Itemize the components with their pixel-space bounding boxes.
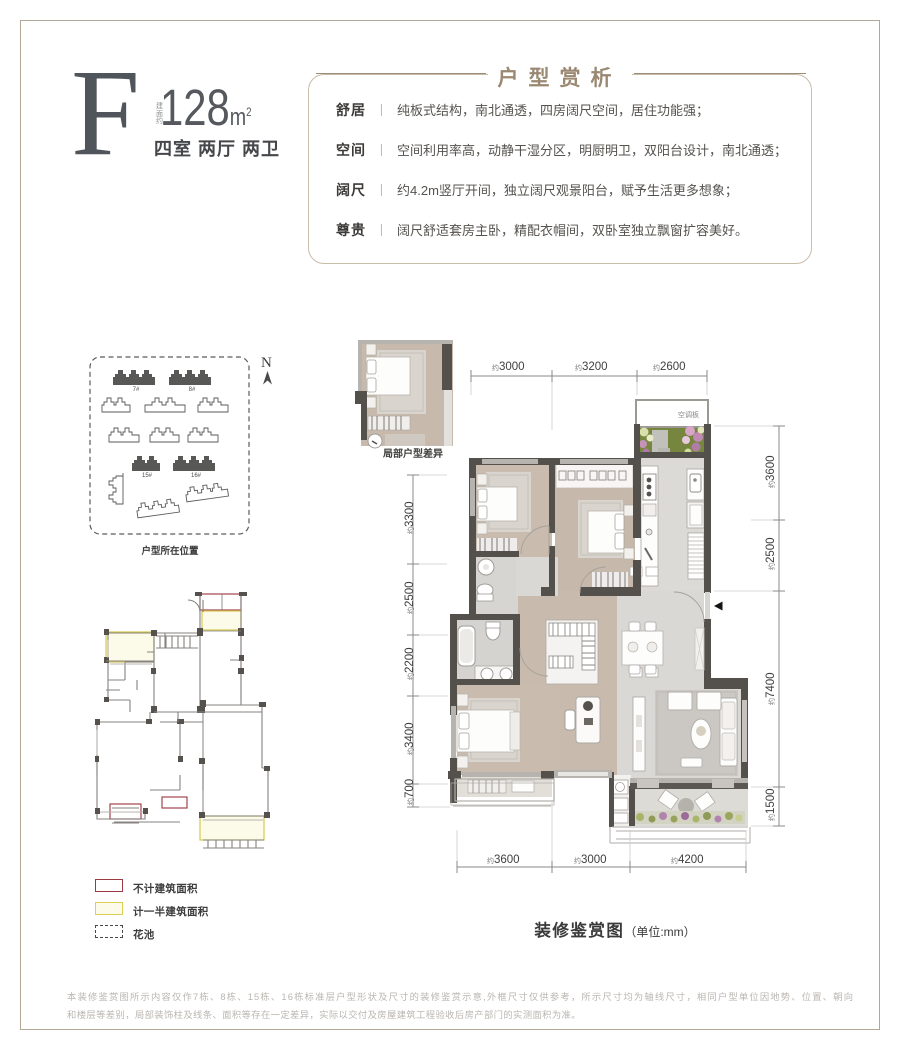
svg-text:16#: 16# xyxy=(191,473,202,479)
svg-text:约3000: 约3000 xyxy=(492,361,525,373)
svg-text:约4200: 约4200 xyxy=(671,854,704,866)
svg-text:约700: 约700 xyxy=(404,779,416,805)
svg-text:约2200: 约2200 xyxy=(404,647,416,680)
svg-text:约7400: 约7400 xyxy=(765,672,777,705)
svg-text:7#: 7# xyxy=(133,387,140,393)
svg-text:约1500: 约1500 xyxy=(765,788,777,821)
svg-text:约2600: 约2600 xyxy=(653,361,686,373)
svg-text:约3000: 约3000 xyxy=(574,854,607,866)
svg-text:空调板: 空调板 xyxy=(678,410,699,419)
svg-text:N: N xyxy=(261,355,272,371)
svg-text:约3200: 约3200 xyxy=(575,361,608,373)
svg-text:约3600: 约3600 xyxy=(765,455,777,488)
svg-text:局部户型差异: 局部户型差异 xyxy=(382,447,443,460)
svg-text:约3400: 约3400 xyxy=(404,722,416,755)
svg-text:约3600: 约3600 xyxy=(487,854,520,866)
svg-text:约2500: 约2500 xyxy=(765,537,777,570)
svg-text:15#: 15# xyxy=(142,473,153,479)
svg-text:8#: 8# xyxy=(189,387,196,393)
svg-text:约3300: 约3300 xyxy=(404,501,416,534)
svg-text:约2500: 约2500 xyxy=(404,581,416,614)
